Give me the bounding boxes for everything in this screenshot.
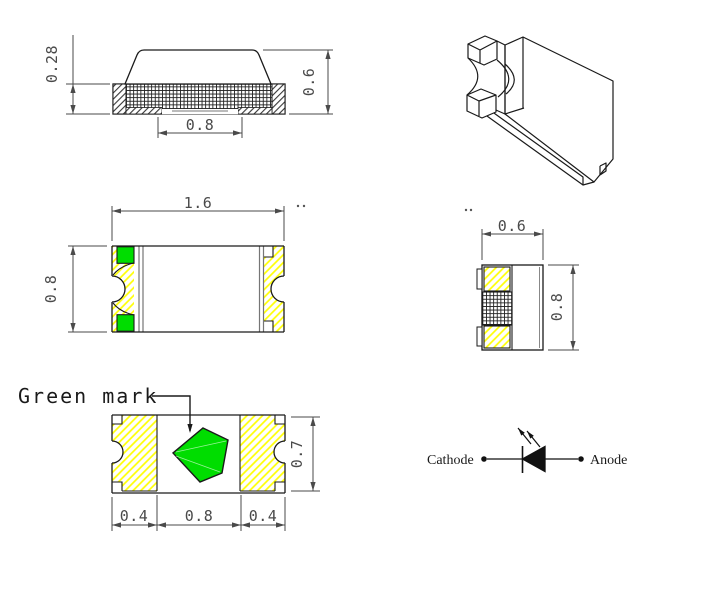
top-dim-length: 1.6 xyxy=(184,194,213,212)
side-bottom-electrode-right xyxy=(238,108,272,115)
side-bottom-recess xyxy=(162,109,238,114)
green-mark-label: Green mark xyxy=(18,384,158,408)
drawing-sheet: 0.28 0.6 0.8 xyxy=(0,0,707,594)
end-substrate xyxy=(482,292,512,325)
end-dim-height: 0.8 xyxy=(548,293,566,322)
cathode-label: Cathode xyxy=(427,453,474,468)
side-resin-body xyxy=(125,50,271,84)
dimension-arrows xyxy=(70,209,284,333)
iso-tab-bottom xyxy=(467,89,496,118)
bottom-view xyxy=(101,396,296,493)
bottom-dim-pad-right: 0.4 xyxy=(249,507,278,525)
green-mark-pentagon xyxy=(173,428,228,482)
iso-castellation-groove-edge xyxy=(467,58,478,95)
iso-tab-top xyxy=(468,36,497,65)
end-pad-bottom xyxy=(484,326,510,348)
side-terminal-left xyxy=(113,84,126,114)
isometric-view xyxy=(467,36,613,185)
top-view xyxy=(99,246,297,332)
end-pad-top xyxy=(484,267,510,291)
green-mark-bottom-left xyxy=(117,315,134,332)
leader-arrow xyxy=(187,424,192,433)
anode-label: Anode xyxy=(590,453,627,468)
bottom-dim-center: 0.8 xyxy=(185,507,214,525)
cathode-node-dot xyxy=(481,456,487,462)
side-dim-bottom-pad: 0.8 xyxy=(186,116,215,134)
side-dim-base-height: 0.28 xyxy=(43,45,61,83)
bottom-dim-height: 0.7 xyxy=(288,440,306,469)
end-tab-top xyxy=(477,269,482,289)
top-view-dimensions xyxy=(68,206,284,332)
top-dim-width: 0.8 xyxy=(42,275,60,304)
end-view xyxy=(477,265,543,350)
stray-dots xyxy=(297,205,472,211)
end-tab-bottom xyxy=(477,327,482,346)
side-dim-total-height: 0.6 xyxy=(300,68,318,97)
green-mark-top-left xyxy=(117,247,134,263)
bottom-dim-pad-left: 0.4 xyxy=(120,507,149,525)
light-emission-arrows-icon xyxy=(518,428,540,447)
end-dim-width: 0.6 xyxy=(498,217,527,235)
led-circuit-symbol xyxy=(481,428,584,473)
side-view xyxy=(113,50,285,114)
led-package-drawing: 0.28 0.6 0.8 xyxy=(0,0,707,594)
side-bottom-electrode-left xyxy=(126,108,162,115)
top-body-outline xyxy=(112,246,284,332)
led-diode-triangle-icon xyxy=(523,447,546,472)
side-terminal-right xyxy=(272,84,285,114)
anode-node-dot xyxy=(578,456,584,462)
